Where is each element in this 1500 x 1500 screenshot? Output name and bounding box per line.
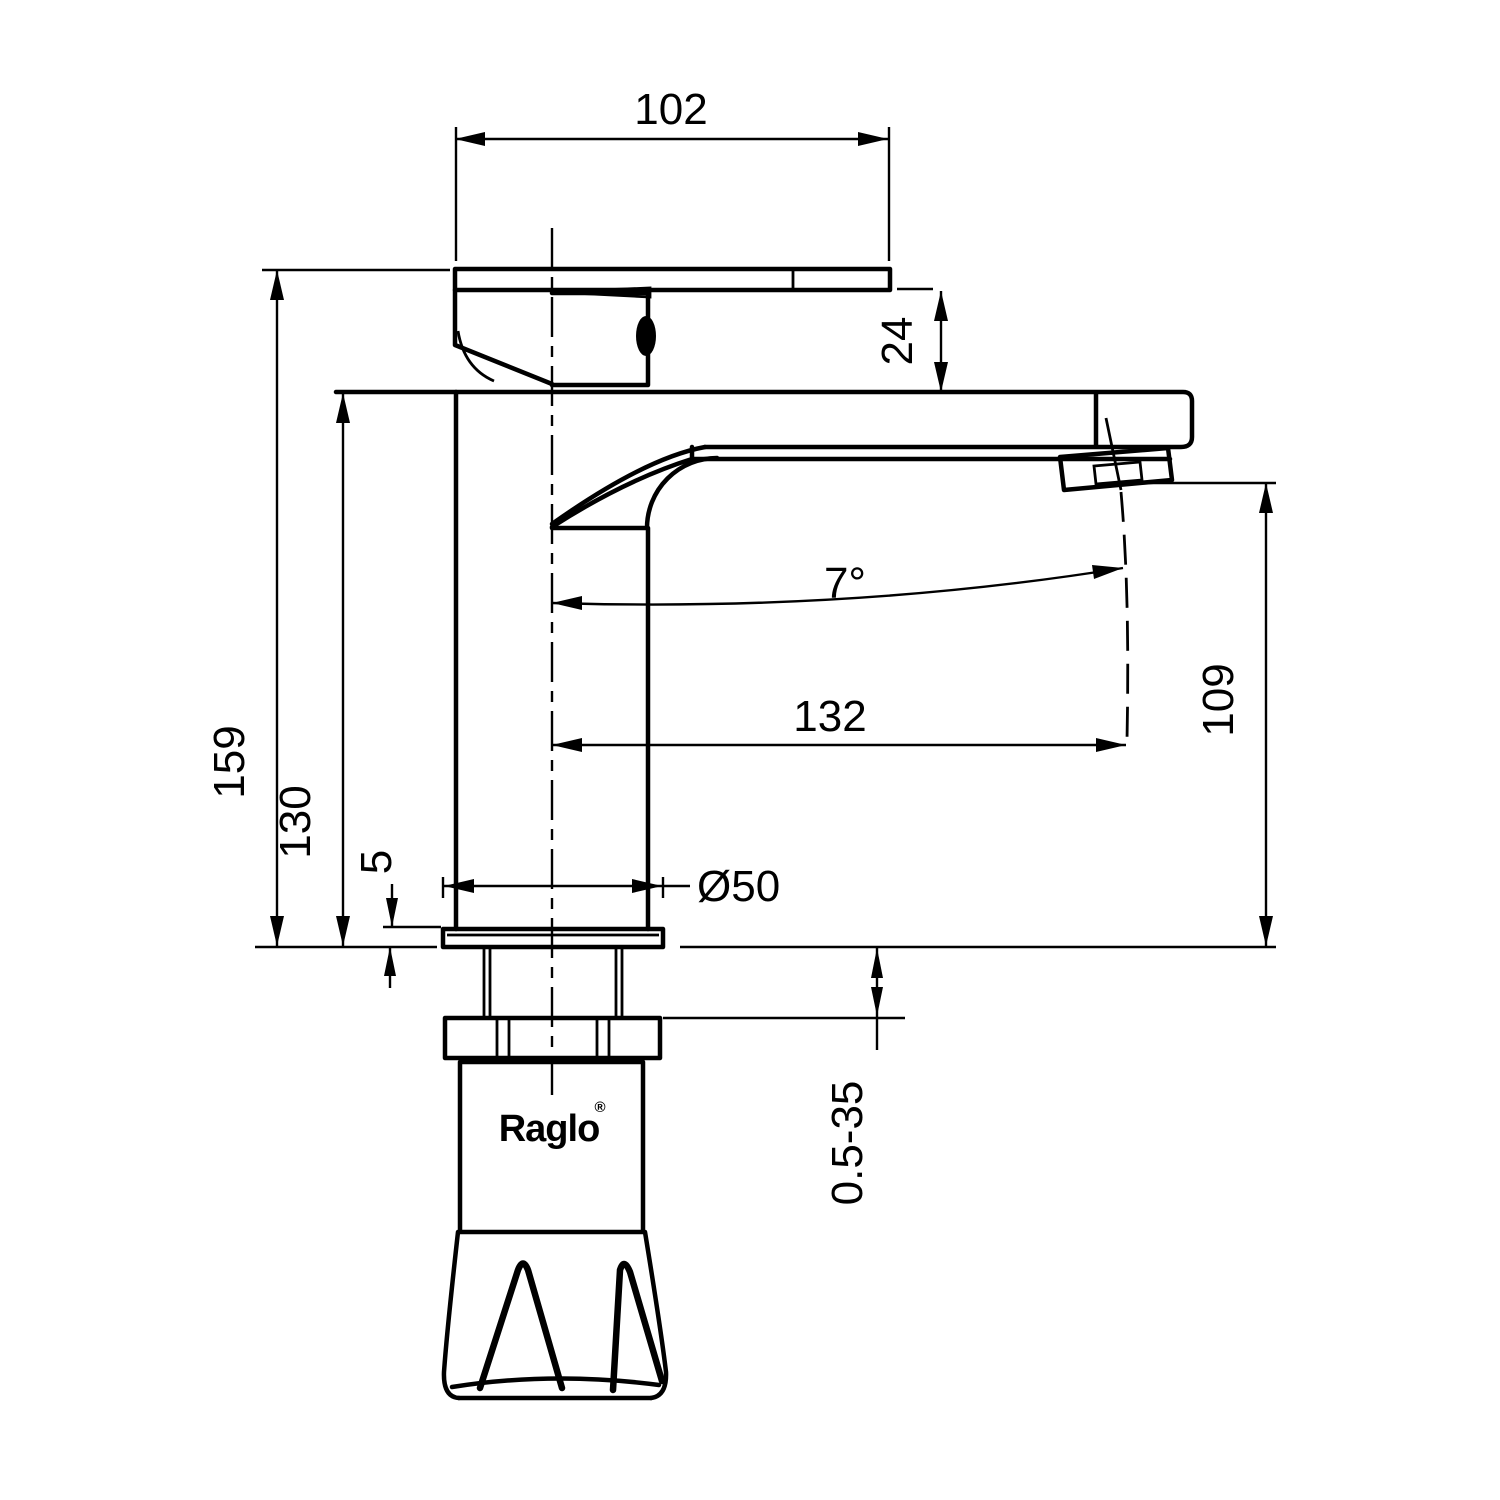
dim-label-d50: Ø50 bbox=[697, 862, 780, 911]
spout-top bbox=[336, 392, 1192, 447]
dim-label-132: 132 bbox=[793, 692, 866, 741]
skirt-left bbox=[444, 1232, 459, 1398]
handle-base-arc bbox=[458, 331, 494, 381]
handle-pivot-dot bbox=[636, 316, 656, 356]
technical-drawing-page: 102 159 130 24 7° 132 109 Ø50 5 0.5-35 R… bbox=[0, 0, 1500, 1500]
dim-label-mounting-range: 0.5-35 bbox=[823, 1081, 872, 1206]
dim-label-159: 159 bbox=[205, 725, 254, 798]
dim-label-102: 102 bbox=[634, 85, 707, 134]
handle-lever bbox=[455, 269, 890, 290]
brand-name: Raglo bbox=[499, 1108, 600, 1150]
spout-root-fillet bbox=[647, 458, 717, 528]
brand-logo: Raglo ® bbox=[499, 1099, 606, 1150]
dim-label-5: 5 bbox=[352, 850, 401, 874]
dim-label-7deg: 7° bbox=[824, 559, 866, 608]
faucet-dimension-drawing: 102 159 130 24 7° 132 109 Ø50 5 0.5-35 R… bbox=[0, 0, 1500, 1500]
dim-label-130: 130 bbox=[271, 785, 320, 858]
axis-lines bbox=[552, 228, 1128, 1095]
dimension-labels: 102 159 130 24 7° 132 109 Ø50 5 0.5-35 bbox=[205, 85, 1243, 1205]
handle-base bbox=[455, 290, 552, 384]
flow-axis-dashed bbox=[1121, 492, 1128, 740]
cartridge-block bbox=[552, 293, 648, 385]
dim-label-24: 24 bbox=[873, 317, 922, 366]
dim-label-109: 109 bbox=[1194, 663, 1243, 736]
registered-trademark-icon: ® bbox=[594, 1099, 605, 1116]
faucet-outline bbox=[336, 269, 1192, 1398]
skirt-grip-left bbox=[480, 1264, 562, 1389]
